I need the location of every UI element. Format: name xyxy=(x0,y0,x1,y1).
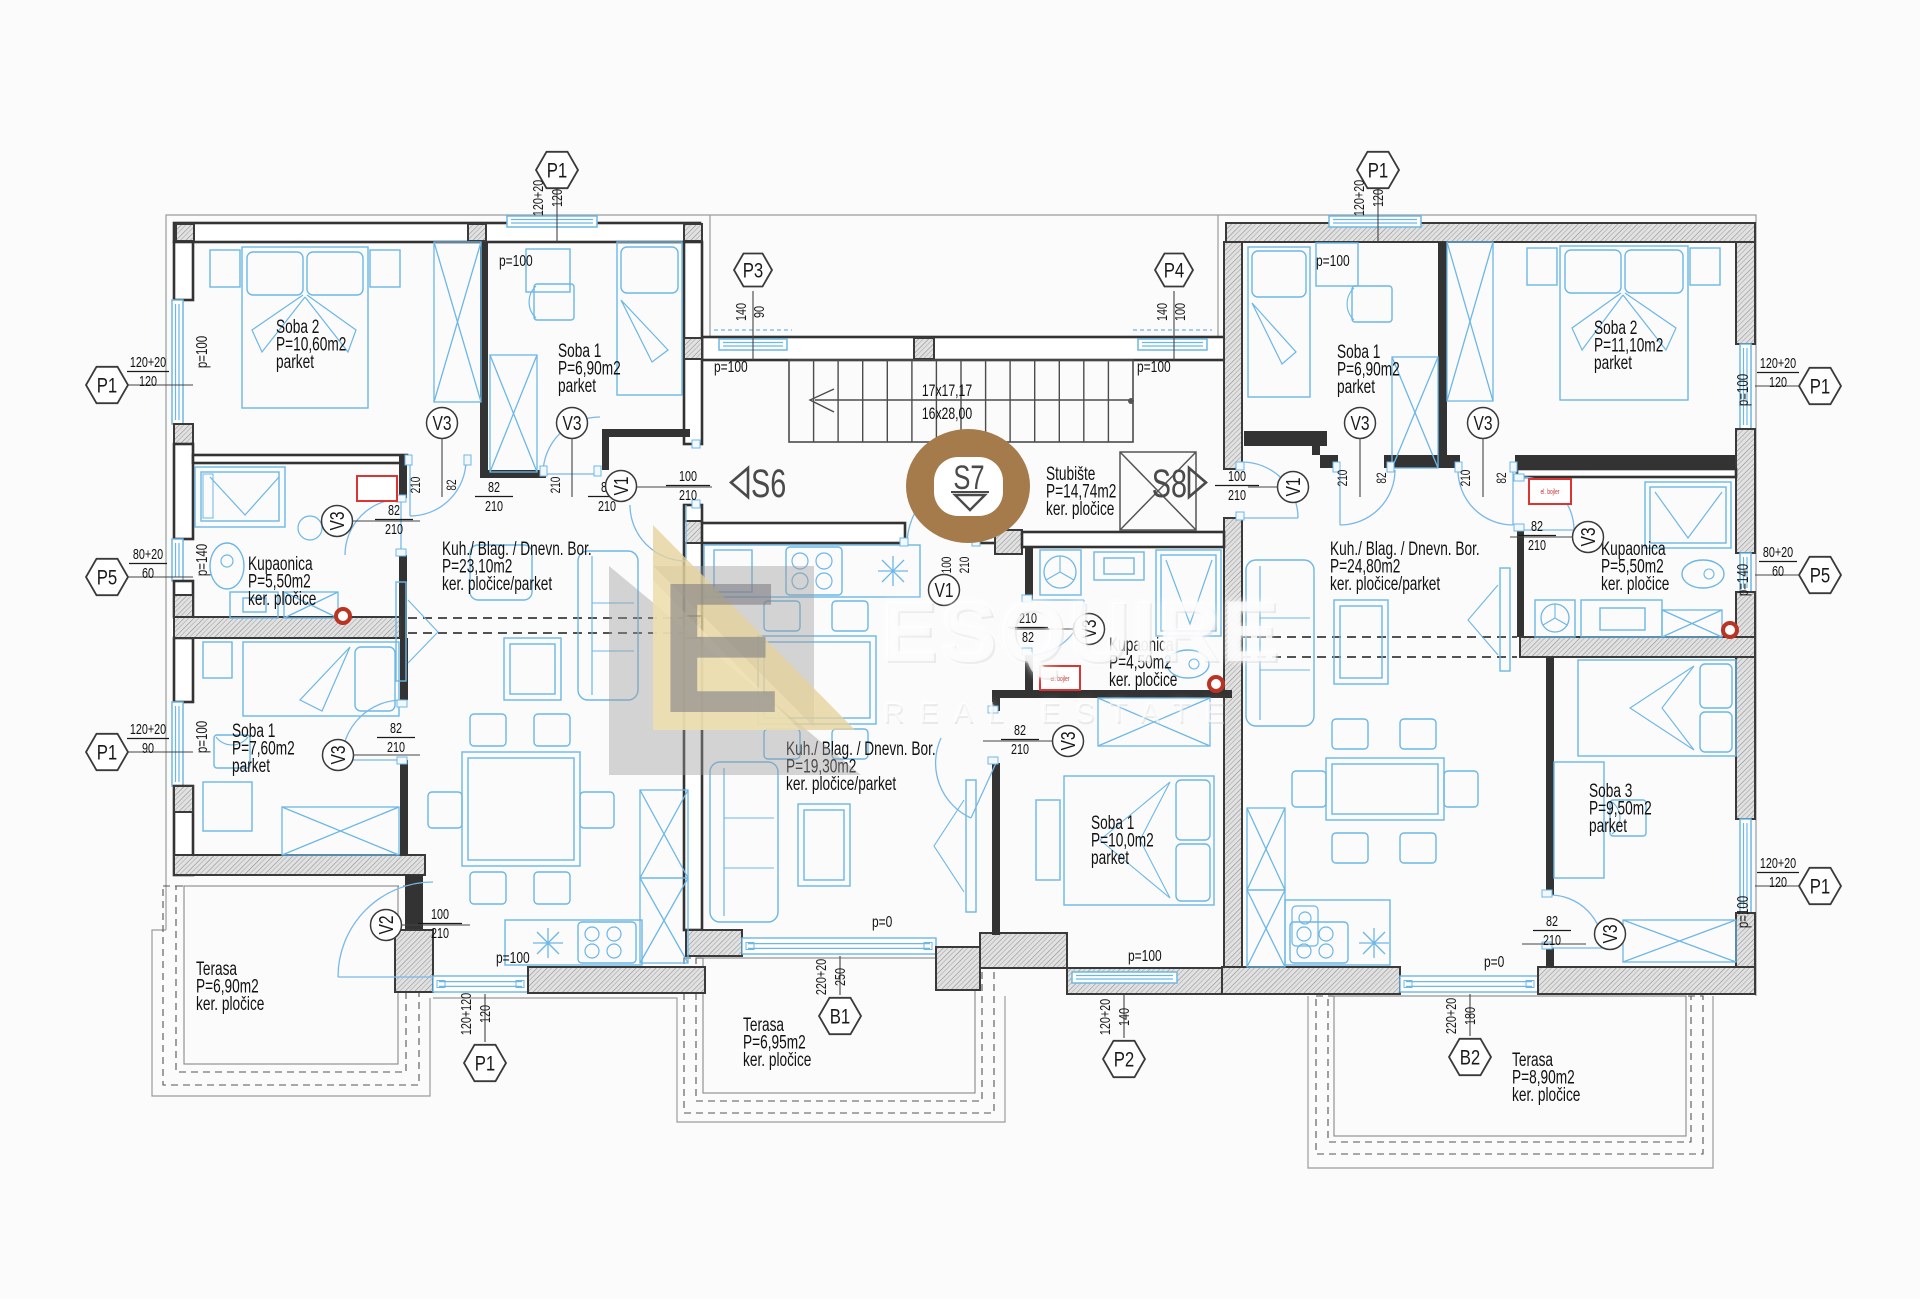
svg-text:V3: V3 xyxy=(326,511,348,530)
svg-text:210: 210 xyxy=(385,520,403,537)
svg-text:100: 100 xyxy=(1228,467,1246,484)
svg-text:V3: V3 xyxy=(1577,527,1599,546)
svg-text:60: 60 xyxy=(1772,562,1784,579)
svg-text:parket: parket xyxy=(232,755,270,777)
svg-text:210: 210 xyxy=(407,476,423,493)
svg-text:P2: P2 xyxy=(1114,1049,1135,1072)
svg-text:82: 82 xyxy=(390,719,402,736)
svg-text:p=100: p=100 xyxy=(714,357,748,375)
svg-text:P5: P5 xyxy=(1810,565,1831,588)
svg-text:120: 120 xyxy=(548,189,565,207)
svg-text:E: E xyxy=(658,545,782,752)
svg-text:82: 82 xyxy=(488,478,500,495)
svg-text:ker. pločice: ker. pločice xyxy=(1601,573,1669,595)
svg-text:el. bojler: el. bojler xyxy=(1541,488,1560,496)
svg-text:p=140: p=140 xyxy=(1733,564,1751,597)
svg-text:ker. pločice: ker. pločice xyxy=(1512,1084,1580,1106)
svg-text:parket: parket xyxy=(1091,847,1129,869)
svg-text:82: 82 xyxy=(443,479,459,490)
svg-text:210: 210 xyxy=(485,497,503,514)
svg-text:210: 210 xyxy=(1543,931,1561,948)
svg-text:ker. pločice/parket: ker. pločice/parket xyxy=(1330,573,1441,595)
svg-text:120: 120 xyxy=(1369,189,1386,207)
svg-text:210: 210 xyxy=(1228,486,1246,503)
svg-text:V1: V1 xyxy=(1282,477,1304,496)
svg-text:p=100: p=100 xyxy=(1733,374,1751,407)
svg-text:P1: P1 xyxy=(1810,876,1831,899)
svg-text:210: 210 xyxy=(1457,469,1473,486)
svg-text:120+20: 120+20 xyxy=(1760,854,1796,871)
svg-text:210: 210 xyxy=(1528,536,1546,553)
svg-text:82: 82 xyxy=(1546,912,1558,929)
svg-text:100: 100 xyxy=(938,556,954,573)
svg-text:220+20: 220+20 xyxy=(1442,998,1459,1034)
svg-text:120: 120 xyxy=(1769,873,1787,890)
svg-text:80+20: 80+20 xyxy=(133,545,163,562)
svg-text:V3: V3 xyxy=(1350,412,1369,434)
svg-text:parket: parket xyxy=(1594,352,1632,374)
svg-text:V2: V2 xyxy=(375,915,397,934)
svg-text:parket: parket xyxy=(1337,376,1375,398)
svg-text:p=100: p=100 xyxy=(499,251,533,269)
svg-text:100: 100 xyxy=(431,905,449,922)
svg-text:parket: parket xyxy=(558,375,596,397)
svg-text:P5: P5 xyxy=(97,567,118,590)
svg-text:B1: B1 xyxy=(830,1006,851,1029)
svg-text:parket: parket xyxy=(1589,815,1627,837)
svg-text:V3: V3 xyxy=(432,412,451,434)
svg-text:140: 140 xyxy=(732,303,749,321)
svg-text:REAL ESTATE: REAL ESTATE xyxy=(883,697,1239,729)
svg-text:210: 210 xyxy=(387,738,405,755)
svg-text:ESQUIRE: ESQUIRE xyxy=(880,584,1281,680)
svg-text:80+20: 80+20 xyxy=(1763,543,1793,560)
svg-text:V3: V3 xyxy=(1599,924,1621,943)
svg-text:60: 60 xyxy=(142,564,154,581)
svg-text:p=100: p=100 xyxy=(1316,251,1350,269)
svg-text:p=100: p=100 xyxy=(192,336,210,369)
svg-text:p=100: p=100 xyxy=(192,721,210,754)
svg-text:V3: V3 xyxy=(1473,412,1492,434)
svg-text:120+20: 120+20 xyxy=(1096,999,1113,1035)
svg-text:ker. pločice/parket: ker. pločice/parket xyxy=(442,573,553,595)
svg-text:17x17,17: 17x17,17 xyxy=(922,382,972,400)
svg-text:120+20: 120+20 xyxy=(529,180,546,216)
svg-text:P3: P3 xyxy=(743,260,764,283)
svg-text:120+20: 120+20 xyxy=(130,720,166,737)
svg-text:p=0: p=0 xyxy=(872,912,892,930)
svg-text:210: 210 xyxy=(956,556,972,573)
svg-text:210: 210 xyxy=(1011,740,1029,757)
svg-text:p=100: p=100 xyxy=(496,948,530,966)
svg-text:P1: P1 xyxy=(475,1053,496,1076)
svg-text:P1: P1 xyxy=(1810,376,1831,399)
svg-text:180: 180 xyxy=(1461,1007,1478,1025)
svg-text:P1: P1 xyxy=(97,742,118,765)
svg-text:210: 210 xyxy=(547,476,563,493)
svg-text:P4: P4 xyxy=(1164,260,1185,283)
svg-text:140: 140 xyxy=(1153,303,1170,321)
svg-text:82: 82 xyxy=(1493,472,1509,483)
svg-text:p=100: p=100 xyxy=(1137,357,1171,375)
svg-text:p=0: p=0 xyxy=(1484,952,1504,970)
svg-text:120: 120 xyxy=(139,372,157,389)
svg-text:210: 210 xyxy=(431,924,449,941)
svg-text:90: 90 xyxy=(142,739,154,756)
svg-text:16x28,00: 16x28,00 xyxy=(922,405,972,423)
svg-text:100: 100 xyxy=(1171,303,1188,321)
svg-text:S8: S8 xyxy=(1152,461,1187,506)
svg-text:90: 90 xyxy=(750,306,767,318)
svg-text:B2: B2 xyxy=(1460,1047,1481,1070)
svg-text:82: 82 xyxy=(1531,517,1543,534)
svg-text:82: 82 xyxy=(1373,472,1389,483)
svg-text:220+20: 220+20 xyxy=(812,959,829,995)
svg-text:p=100: p=100 xyxy=(1733,896,1751,929)
svg-text:V1: V1 xyxy=(610,476,632,495)
svg-text:ker. pločice: ker. pločice xyxy=(248,588,316,610)
svg-text:P1: P1 xyxy=(97,375,118,398)
svg-text:S6: S6 xyxy=(751,461,786,506)
svg-text:250: 250 xyxy=(831,968,848,986)
svg-text:parket: parket xyxy=(276,351,314,373)
svg-text:140: 140 xyxy=(1115,1008,1132,1026)
svg-text:ker. pločice: ker. pločice xyxy=(1046,498,1114,520)
svg-text:ker. pločice: ker. pločice xyxy=(743,1049,811,1071)
svg-text:120+20: 120+20 xyxy=(1350,180,1367,216)
svg-text:120: 120 xyxy=(476,1005,493,1023)
svg-text:210: 210 xyxy=(679,486,697,503)
svg-text:100: 100 xyxy=(679,467,697,484)
svg-text:p=140: p=140 xyxy=(192,544,210,577)
svg-text:P1: P1 xyxy=(547,160,568,183)
svg-text:82: 82 xyxy=(388,501,400,518)
svg-text:ker. pločice/parket: ker. pločice/parket xyxy=(786,773,897,795)
svg-text:210: 210 xyxy=(1334,469,1350,486)
svg-text:120+20: 120+20 xyxy=(130,353,166,370)
svg-text:V3: V3 xyxy=(562,412,581,434)
svg-text:120+20: 120+20 xyxy=(1760,354,1796,371)
svg-text:P1: P1 xyxy=(1368,160,1389,183)
svg-text:120: 120 xyxy=(1769,373,1787,390)
svg-text:p=100: p=100 xyxy=(1128,946,1162,964)
svg-text:120+120: 120+120 xyxy=(457,993,474,1035)
svg-text:ker. pločice: ker. pločice xyxy=(196,993,264,1015)
svg-text:V3: V3 xyxy=(1057,731,1079,750)
svg-text:V3: V3 xyxy=(327,745,349,764)
